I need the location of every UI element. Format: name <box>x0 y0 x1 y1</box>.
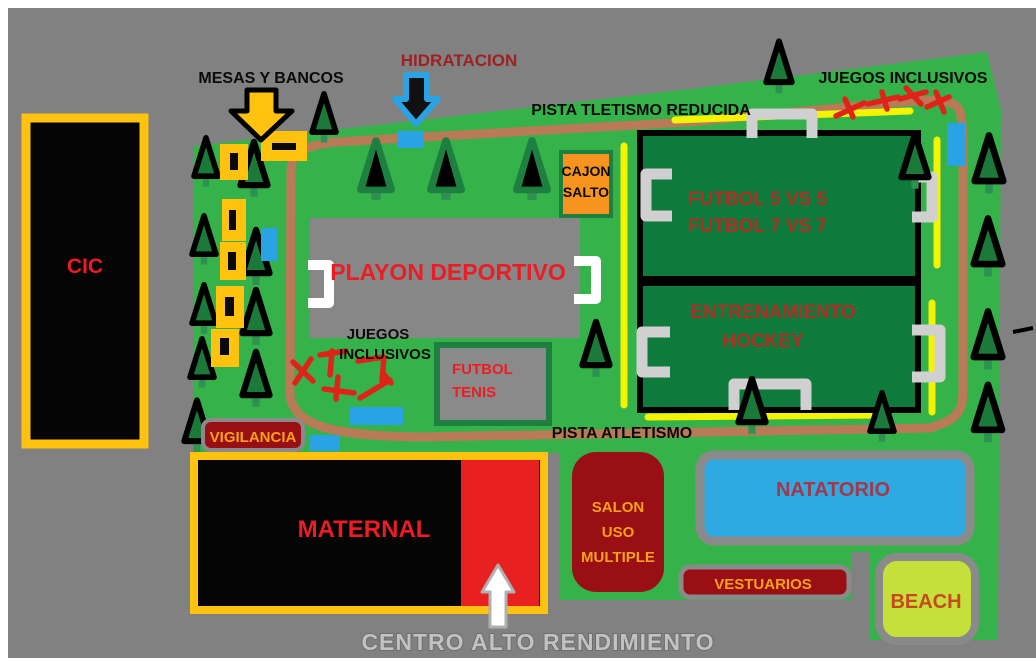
label-centro-alto-rendimiento: CENTRO ALTO RENDIMIENTO <box>361 629 714 655</box>
bench-mark <box>230 153 238 170</box>
label-juegos-left: JUEGOS <box>347 326 410 343</box>
label-cic: CIC <box>67 255 103 278</box>
label-inclusivos-left: INCLUSIVOS <box>339 346 431 363</box>
label-salto: SALTO <box>563 184 609 200</box>
water-point <box>947 123 966 166</box>
field-divider <box>640 276 918 286</box>
label-entrenamiento: ENTRENAMIENTO <box>690 302 855 323</box>
bench-mark <box>229 210 236 230</box>
label-hockey: HOCKEY <box>722 331 804 352</box>
label-futbol-tenis-2: TENIS <box>452 384 496 401</box>
water-point <box>350 407 403 425</box>
label-futbol-7: FUTBOL 7 VS 7 <box>688 216 827 237</box>
label-natatorio: NATATORIO <box>776 479 890 501</box>
label-vigilancia: VIGILANCIA <box>210 429 297 446</box>
label-futbol-5: FUTBOL 5 VS 5 <box>688 189 827 210</box>
label-vestuarios: VESTUARIOS <box>714 576 812 593</box>
label-futbol-tenis-1: FUTBOL <box>452 361 513 378</box>
futbol-hockey-field <box>640 133 918 410</box>
label-multiple: MULTIPLE <box>581 549 655 566</box>
label-uso: USO <box>602 524 635 541</box>
label-mesas-y-bancos: MESAS Y BANCOS <box>198 70 344 87</box>
salon-uso-multiple-box <box>572 452 664 592</box>
facility-map: MESAS Y BANCOS HIDRATACION PISTA TLETISM… <box>0 0 1036 662</box>
label-cajon: CAJON <box>561 163 610 179</box>
cic-building <box>26 118 144 444</box>
label-salon: SALON <box>592 499 645 516</box>
label-beach: BEACH <box>890 591 961 613</box>
label-playon-deportivo: PLAYON DEPORTIVO <box>330 259 566 285</box>
bench-mark <box>225 297 234 316</box>
bench-mark <box>220 338 229 355</box>
label-maternal: MATERNAL <box>298 516 431 543</box>
bench-mark <box>228 252 236 270</box>
label-pista-atletismo: PISTA ATLETISMO <box>552 425 692 442</box>
bench-mark <box>272 143 296 150</box>
water-point <box>261 228 277 261</box>
label-juegos-inclusivos-top: JUEGOS INCLUSIVOS <box>819 70 988 87</box>
label-pista-tletismo-reducida: PISTA TLETISMO REDUCIDA <box>531 102 751 119</box>
label-hidratacion: HIDRATACION <box>401 51 517 70</box>
water-point <box>310 435 340 451</box>
water-point <box>397 131 424 148</box>
